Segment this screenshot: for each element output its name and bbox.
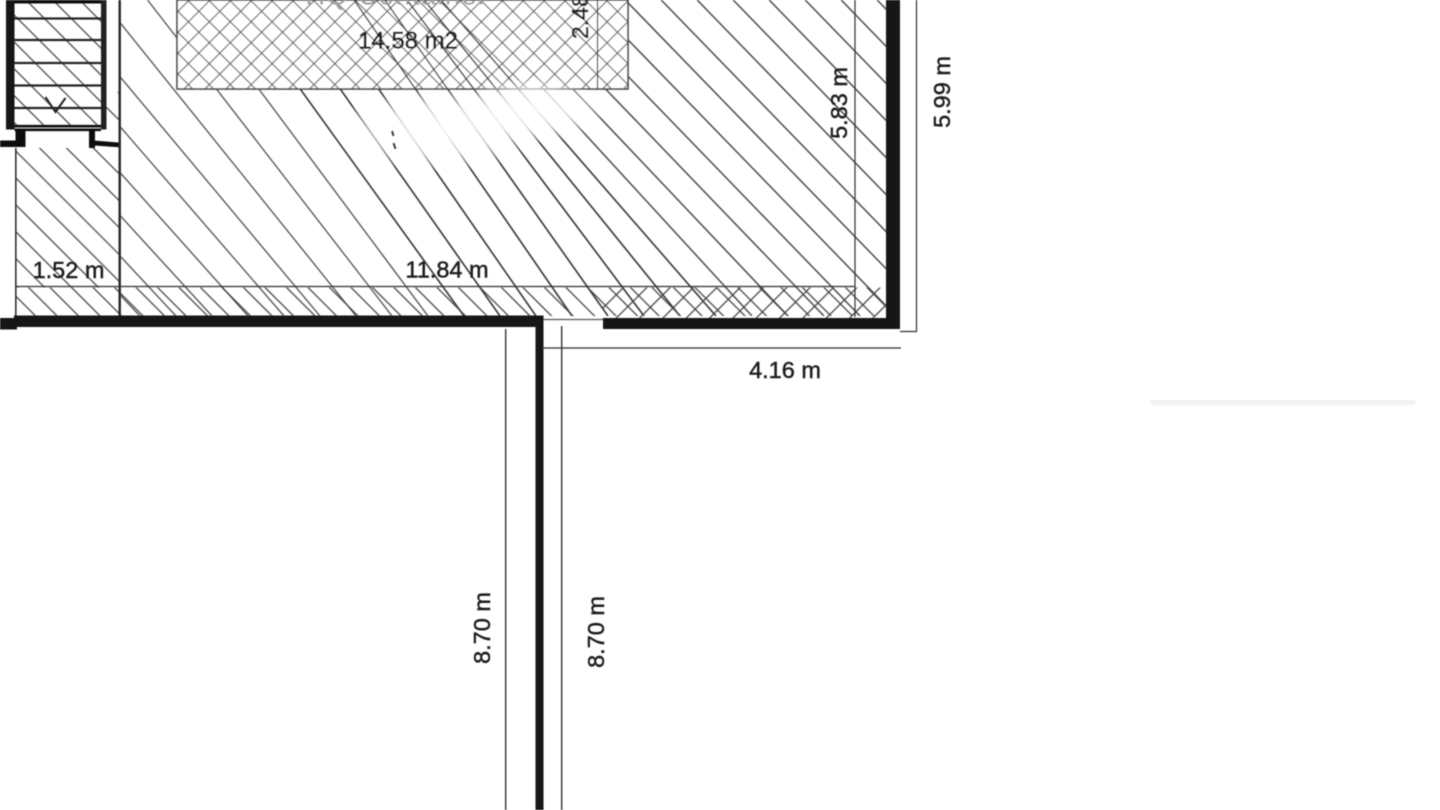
svg-text:8.70 m: 8.70 m — [583, 596, 609, 668]
svg-text:4.16 m: 4.16 m — [749, 357, 821, 383]
svg-text:2.48 m: 2.48 m — [567, 0, 593, 39]
svg-text:HQ Container: HQ Container — [305, 0, 488, 11]
svg-text:5.83 m: 5.83 m — [826, 67, 852, 139]
svg-text:5.99 m: 5.99 m — [929, 56, 955, 128]
svg-text:1.52 m: 1.52 m — [33, 257, 105, 283]
svg-text:8.70 m: 8.70 m — [469, 592, 495, 664]
svg-text:11.84 m: 11.84 m — [405, 257, 488, 283]
svg-text:14.58 m2: 14.58 m2 — [358, 28, 458, 55]
